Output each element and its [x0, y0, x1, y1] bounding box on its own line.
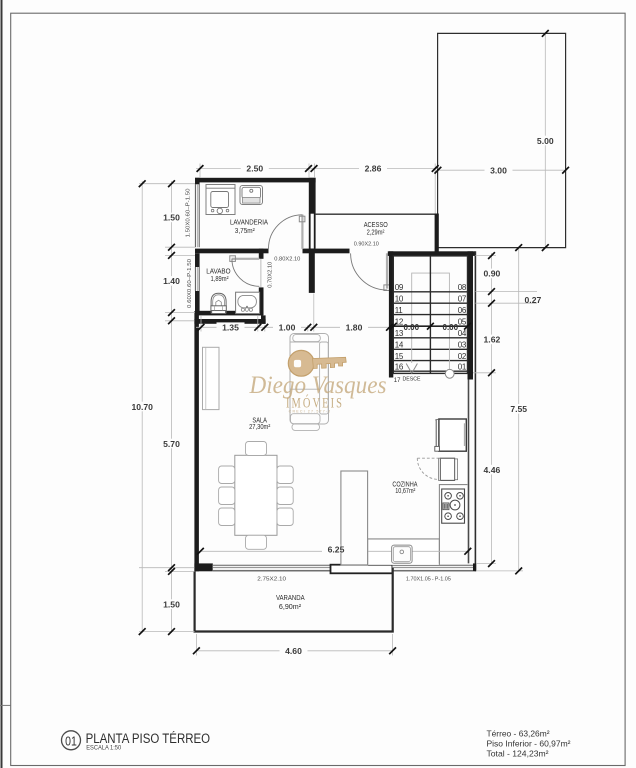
svg-text:LAVANDERIA: LAVANDERIA	[230, 219, 268, 226]
svg-text:4.46: 4.46	[484, 465, 501, 475]
svg-text:2.75X2.10: 2.75X2.10	[257, 576, 286, 582]
svg-text:1.50X0.60–P-1.50: 1.50X0.60–P-1.50	[185, 188, 191, 237]
svg-text:1.80: 1.80	[346, 323, 363, 333]
svg-text:0.27: 0.27	[525, 295, 542, 305]
svg-text:1.70X1.05 - P-1.05: 1.70X1.05 - P-1.05	[406, 576, 451, 582]
svg-text:0.00: 0.00	[404, 323, 420, 332]
svg-text:1,89m²: 1,89m²	[211, 276, 230, 283]
svg-text:05: 05	[458, 318, 467, 327]
svg-text:Total - 124,23m²: Total - 124,23m²	[487, 749, 549, 759]
svg-text:Térreo - 63,26m²: Térreo - 63,26m²	[487, 728, 550, 738]
svg-text:0.00: 0.00	[443, 323, 459, 332]
svg-text:2,29m²: 2,29m²	[367, 230, 385, 237]
svg-text:04: 04	[458, 329, 467, 338]
svg-text:02: 02	[458, 352, 467, 361]
svg-text:17: 17	[394, 378, 401, 384]
svg-text:1.35: 1.35	[222, 323, 239, 333]
svg-text:12: 12	[395, 318, 404, 327]
svg-text:1.40: 1.40	[163, 276, 180, 286]
svg-text:15: 15	[395, 352, 404, 361]
svg-text:1.00: 1.00	[279, 323, 296, 333]
svg-text:VARANDA: VARANDA	[276, 595, 305, 602]
svg-text:4.60: 4.60	[285, 646, 302, 656]
svg-text:3.00: 3.00	[490, 165, 507, 175]
svg-text:08: 08	[458, 283, 467, 292]
svg-text:0.70X2.10: 0.70X2.10	[267, 262, 273, 288]
svg-text:27,30m²: 27,30m²	[249, 424, 271, 431]
svg-text:5.70: 5.70	[163, 439, 180, 449]
svg-text:0.60X0.60–P-1.50: 0.60X0.60–P-1.50	[187, 259, 193, 308]
svg-text:10.70: 10.70	[131, 402, 153, 412]
svg-text:ACESSO: ACESSO	[364, 222, 389, 229]
svg-text:13: 13	[395, 329, 404, 338]
svg-text:09: 09	[395, 283, 404, 292]
svg-text:5.00: 5.00	[537, 136, 554, 146]
svg-text:Piso Inferior - 60,97m²: Piso Inferior - 60,97m²	[487, 738, 571, 748]
svg-text:01: 01	[458, 363, 467, 372]
svg-text:01: 01	[65, 734, 77, 749]
svg-text:1.50: 1.50	[163, 599, 180, 609]
svg-text:1.62: 1.62	[484, 335, 501, 345]
svg-text:0.90: 0.90	[484, 269, 501, 279]
svg-text:2.50: 2.50	[246, 164, 263, 174]
svg-text:2.86: 2.86	[365, 164, 382, 174]
svg-text:ESCALA 1:50: ESCALA 1:50	[86, 745, 121, 752]
svg-text:0.90X2.10: 0.90X2.10	[354, 242, 379, 248]
svg-text:14: 14	[395, 341, 404, 350]
svg-text:3,75m²: 3,75m²	[235, 228, 256, 235]
svg-text:0.80X2.10: 0.80X2.10	[274, 257, 300, 263]
svg-text:10,67m²: 10,67m²	[395, 488, 416, 495]
svg-text:11: 11	[395, 306, 403, 315]
svg-text:06: 06	[458, 306, 467, 315]
svg-text:07: 07	[458, 295, 467, 304]
svg-text:10: 10	[395, 295, 404, 304]
svg-text:7.55: 7.55	[510, 404, 527, 414]
svg-text:16: 16	[395, 363, 404, 372]
svg-text:1.50: 1.50	[163, 213, 180, 223]
svg-text:03: 03	[458, 341, 467, 350]
svg-text:LAVABO: LAVABO	[206, 269, 231, 276]
svg-text:DESCE: DESCE	[403, 377, 421, 383]
svg-text:6.25: 6.25	[328, 544, 345, 554]
svg-text:6,90m²: 6,90m²	[279, 604, 302, 611]
svg-text:CRECI 27.577-J: CRECI 27.577-J	[289, 409, 332, 413]
